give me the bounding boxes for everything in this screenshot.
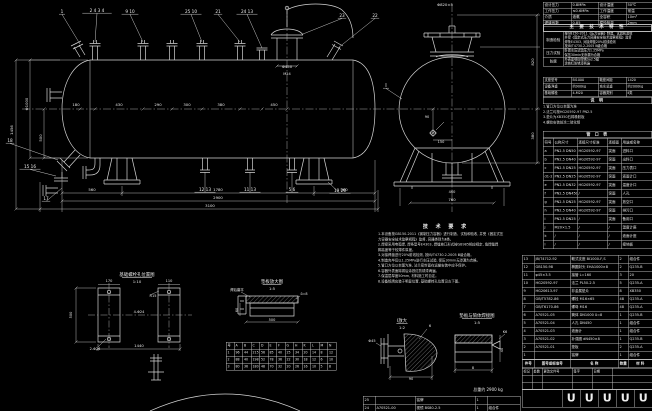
table-cell: 48 xyxy=(618,295,628,303)
dim-label: 500 xyxy=(69,312,73,319)
tech-param-table: 设计压力0.8MPa设计温度50℃工作压力≤0.6MPa工作温度常温介质液氨全容… xyxy=(543,2,652,27)
detail-anchor-bolt-layout xyxy=(75,283,193,351)
table-cell: 18 xyxy=(302,356,311,363)
table-cell: 26 xyxy=(294,363,303,370)
table-cell: 更改文件号 xyxy=(542,368,572,375)
table-cell: 48 xyxy=(260,363,269,370)
table-cell: A70521-00 xyxy=(375,404,415,411)
pad-hatch-strip xyxy=(246,296,298,303)
table-cell: 符号 xyxy=(543,138,553,147)
table-cell: A70521-01 xyxy=(534,343,570,351)
table-cell: 日期 xyxy=(592,368,612,375)
saddle-right xyxy=(296,158,332,184)
balloon-leader xyxy=(338,18,375,48)
table-cell: 36 xyxy=(277,356,286,363)
table-cell: 88 xyxy=(234,356,243,363)
bom-revision-rows: 标记处数更改文件号签字日期 xyxy=(522,368,652,390)
table-cell: HG20592-97 xyxy=(577,198,607,207)
nozzle-table: 符号公称尺寸连接尺寸标准连接面用途或名称aPN2.5 DN50HG20592-9… xyxy=(543,138,652,249)
table-cell: 名 称 xyxy=(570,360,618,368)
table-cell: 组合件 xyxy=(628,319,652,327)
table-cell: / xyxy=(577,189,607,198)
table-cell: Q235-A xyxy=(628,343,652,351)
misc-bottom-left-detail xyxy=(148,354,164,380)
end-view xyxy=(394,4,540,212)
table-cell: 44 xyxy=(243,349,252,356)
table-cell: 补强圈 dN450×8 xyxy=(570,335,618,343)
table-cell xyxy=(612,375,652,382)
table-cell: PN2.5 DN25 xyxy=(553,215,577,224)
table-cell: 25 xyxy=(285,349,294,356)
table-row: aPN2.5 DN50HG20592-97突面进料口 xyxy=(543,147,652,156)
dim-label: M24 xyxy=(283,72,291,76)
table-cell: N xyxy=(328,342,337,349)
table-cell: 公称尺寸 xyxy=(553,138,577,147)
table-cell: 34 xyxy=(294,349,303,356)
table-cell: 2 xyxy=(618,255,628,263)
table-cell: 9 xyxy=(522,287,534,295)
table-cell: 180 xyxy=(251,363,260,370)
table-cell: E xyxy=(268,342,277,349)
table-row: gPN2.5 DN25HG20592-97突面放空口 xyxy=(543,198,652,207)
table-cell: f xyxy=(543,189,553,198)
table-row: 2884019852783622301812610 xyxy=(226,356,336,363)
saddle-left xyxy=(104,158,140,184)
balloon-label: 9 10 xyxy=(125,9,135,14)
balloon-label: 18 xyxy=(7,138,13,143)
table-cell: 放空口 xyxy=(621,198,652,207)
table-cell: 备用口 xyxy=(621,215,652,224)
dim-label: 2900 xyxy=(213,195,223,200)
table-row: 24A70521-00视镜 BS80-2.51组合件 xyxy=(363,404,520,411)
table-cell: 1 xyxy=(618,319,628,327)
table-cell: 组合件 xyxy=(628,255,652,263)
dim-label: 150 xyxy=(438,140,445,144)
table-cell: 6 xyxy=(522,311,534,319)
table-cell: / xyxy=(577,223,607,232)
table-cell: U xyxy=(580,390,598,408)
table-cell: 号 xyxy=(226,342,234,349)
table-cell: F xyxy=(277,342,286,349)
table-cell: JB/T4712-92 xyxy=(534,255,570,263)
tech-spec-table: 制造检验按GB150-2011《压力容器》制造、试验和验收并受《固定式压力容器安… xyxy=(543,31,652,66)
balloon-label: 1 xyxy=(61,9,64,14)
table-row: 符号公称尺寸连接尺寸标准连接面用途或名称 xyxy=(543,138,652,147)
table-cell: 液面计 xyxy=(570,327,618,335)
nozzle-table-title: 管 口 表 xyxy=(543,131,652,138)
table-cell: 20 xyxy=(302,349,311,356)
table-cell: 20 xyxy=(285,363,294,370)
table-cell: 进料口 xyxy=(621,147,652,156)
table-cell xyxy=(592,375,612,382)
left-head-lower-elbow xyxy=(54,150,80,181)
table-cell: G xyxy=(285,342,294,349)
table-cell: / xyxy=(553,232,577,241)
table-cell: 垫板 xyxy=(570,343,618,351)
balloon-leader xyxy=(218,14,240,42)
table-cell: 件号 xyxy=(522,360,534,368)
spec-cell: 按GB150-2011《压力容器》制造、试验和验收并受《固定式压力容器安全技术监… xyxy=(563,31,652,48)
table-cell: K xyxy=(302,342,311,349)
table-cell: HG20592-97 xyxy=(577,164,607,173)
table-cell: 4-M20 xyxy=(571,90,598,97)
top-nozzle xyxy=(167,40,178,60)
balloon-leader xyxy=(10,143,58,160)
spec-cell: 外表面喷砂除锈Sa2.5级涂铁红防锈漆两遍 xyxy=(563,57,652,66)
table-row: 2A70521-01垫板2Q235-A xyxy=(522,343,652,351)
table-cell: 70 xyxy=(268,363,277,370)
table-cell: Q235-B xyxy=(628,311,652,319)
left-head-top-nozzle xyxy=(71,41,85,57)
dim-label: Φ820±5 xyxy=(437,2,453,7)
table-cell: 11 xyxy=(522,271,534,279)
table-cell: 容器类别 xyxy=(598,90,626,97)
table-row: 3A70521-02补强圈 dN450×81Q235-B xyxy=(522,335,652,343)
table-row: l///接地板 xyxy=(543,240,652,249)
table-cell: 突面 xyxy=(607,198,621,207)
top-nozzle xyxy=(138,40,149,60)
table-cell: e xyxy=(543,181,553,190)
table-cell xyxy=(522,390,562,408)
table-cell: 压力表口 xyxy=(621,164,652,173)
table-cell: HG20592-97 xyxy=(577,172,607,181)
spec-cell: 卧置水压试验压力1.25MPa保压30min无渗漏为合格 xyxy=(563,48,652,57)
table-cell: 7 xyxy=(522,303,534,311)
table-cell: 85 xyxy=(268,349,277,356)
table-cell: 数量 xyxy=(618,360,628,368)
table-cell: 12 xyxy=(522,263,534,271)
manhole-davit xyxy=(287,4,353,38)
tech-notes-lines: 1.管口方位以本图为准2.法兰均按HG20592-97 PN2.53.垫片为XB… xyxy=(543,104,652,125)
dim-label: 1:5 xyxy=(269,286,276,291)
table-cell: 2 xyxy=(226,356,234,363)
table-cell: HG20592-97 xyxy=(534,279,570,287)
dim-label: 60 xyxy=(235,308,239,312)
bom-table: 13JB/T4712-92鞍式支座 BⅠ1000-F,S2组合件12GB150-… xyxy=(522,255,652,360)
table-cell: 3 xyxy=(618,271,628,279)
table-cell: GB150-98 xyxy=(534,263,570,271)
bom2-table: 25铭牌124A70521-00视镜 BS80-2.51组合件 xyxy=(363,396,521,411)
table-cell: 6 xyxy=(319,356,328,363)
table-cell: 2 xyxy=(618,343,628,351)
table-cell: / xyxy=(577,240,607,249)
dim-label: 380 xyxy=(530,132,535,140)
dim-label: 40 xyxy=(500,348,504,352)
table-cell: 突面 xyxy=(607,181,621,190)
table-cell: M xyxy=(319,342,328,349)
table-cell: 40 xyxy=(277,349,286,356)
text-line: 涂铁红防锈漆两遍 xyxy=(565,62,652,66)
table-cell: 连接面 xyxy=(607,138,621,147)
table-row: cPN2.5 DN25HG20592-97突面压力表口 xyxy=(543,164,652,173)
table-row: 10HG20592-97法兰 PL50-2.55Q235-A xyxy=(522,279,652,287)
table-cell: 基础螺栓 xyxy=(543,90,571,97)
dim-label: 500 xyxy=(269,318,276,322)
pad-table-block: 号ABCDEFGHKLMN196442155685402534201481228… xyxy=(226,342,334,399)
table-cell: 签字 xyxy=(572,368,592,375)
table-row: 25铭牌1 xyxy=(363,396,520,404)
table-cell: 鞍式支座 BⅠ1000-F,S xyxy=(570,255,618,263)
table-row xyxy=(522,382,652,389)
spec-cell: 压力试验 xyxy=(543,48,563,57)
table-cell: GB/T5782-86 xyxy=(534,295,570,303)
balloon-leader xyxy=(303,18,342,34)
top-nozzle xyxy=(235,40,246,60)
table-cell: PN2.5 DN25 xyxy=(553,198,577,207)
table-cell: / xyxy=(607,223,621,232)
balloon-leader xyxy=(30,169,56,176)
table-cell: 8 xyxy=(618,287,628,295)
table-cell: 出料口 xyxy=(621,155,652,164)
balloon-leader xyxy=(46,188,62,201)
table-cell: L xyxy=(311,342,320,349)
dim-label: 基础螺栓孔位置图 xyxy=(119,271,155,278)
tech-grid2-table: 支座型号BⅠ1000鞍座间距1420设备净重约900kg充水总重约2000kg基… xyxy=(543,77,652,97)
table-cell: / xyxy=(607,240,621,249)
main-view xyxy=(15,4,541,212)
table-row: ePN2.5 DN32HG20592-97突面温度计口 xyxy=(543,181,652,190)
table-cell: 突面 xyxy=(607,206,621,215)
table-cell: U xyxy=(598,390,616,408)
table-cell: 40 xyxy=(243,356,252,363)
table-cell: 3 xyxy=(226,363,234,370)
top-nozzle xyxy=(197,40,208,60)
table-row: 13JB/T4712-92鞍式支座 BⅠ1000-F,S2组合件 xyxy=(522,255,652,263)
spec-row: 防腐外表面喷砂除锈Sa2.5级涂铁红防锈漆两遍 xyxy=(543,57,652,66)
dim-label: 90 xyxy=(425,115,429,119)
text-line: 4.螺纹安装前涂二硫化钼 xyxy=(543,120,652,125)
bom2-block: 25铭牌124A70521-00视镜 BS80-2.51组合件 xyxy=(363,396,520,411)
table-cell xyxy=(532,382,542,389)
right-head-nozzle xyxy=(327,41,343,60)
dim-label: 820 xyxy=(530,58,535,66)
table-cell: 3 xyxy=(522,335,534,343)
balloon-leader xyxy=(247,14,262,48)
dim-label: 760 xyxy=(448,197,456,202)
table-cell: 48 xyxy=(618,303,628,311)
table-cell: 突面 xyxy=(607,164,621,173)
table-row: 11φ45×3.5接管 L=160320 xyxy=(522,271,652,279)
dim-label: 4-Φ24 xyxy=(134,310,145,314)
table-cell xyxy=(522,375,532,382)
technical-requirements-lines: 1.本设备按GB150-2011《钢制压力容器》进行制造、试验和验收, 并受《固… xyxy=(378,232,514,285)
dim-label: 290 xyxy=(154,102,162,107)
table-cell: U xyxy=(616,390,634,408)
table-cell: Q235-A xyxy=(628,303,652,311)
table-row: iPN2.5 DN25/突面备用口 xyxy=(543,215,652,224)
table-cell: / xyxy=(577,232,607,241)
table-row: bPN2.5 DN40HG20592-97突面出料口 xyxy=(543,155,652,164)
table-cell: 接管 L=160 xyxy=(570,271,618,279)
table-cell: 4 xyxy=(522,327,534,335)
table-cell: 人孔 DN450 xyxy=(570,319,618,327)
table-row: 基础螺栓4-M20容器类别Ⅱ类 xyxy=(543,90,652,97)
table-cell: HG20592-97 xyxy=(577,206,607,215)
table-cell: 连接尺寸标准 xyxy=(577,138,607,147)
dim-label: 430 xyxy=(115,102,123,107)
table-cell: 56 xyxy=(260,349,269,356)
table-cell: 10 xyxy=(311,363,320,370)
table-cell: a xyxy=(543,147,553,156)
table-cell: 10 xyxy=(328,356,337,363)
table-cell: 1 xyxy=(475,396,487,404)
dim-label: 2-Φ24 xyxy=(90,347,101,351)
table-cell: PN2.5 DN25 xyxy=(553,172,577,181)
table-row: UUUUU xyxy=(522,390,652,408)
table-cell xyxy=(522,382,532,389)
table-cell: HG20592-97 xyxy=(577,181,607,190)
table-cell: 198 xyxy=(251,356,260,363)
table-cell: 接地板 xyxy=(621,240,652,249)
table-cell: 1 xyxy=(618,311,628,319)
table-cell: 人孔 xyxy=(621,189,652,198)
table-row: 8GB/T5782-86螺栓 M16×6548Q235-A xyxy=(522,295,652,303)
table-row: jM20×1.5//温度计座 xyxy=(543,223,652,232)
table-cell xyxy=(532,375,542,382)
dim-label: Φ450 xyxy=(282,64,293,69)
dim-label: 380 xyxy=(217,102,225,107)
dim-label: 1780 xyxy=(213,187,223,192)
table-cell: PN2.5 DN40 xyxy=(553,155,577,164)
table-row: 号ABCDEFGHKLMN xyxy=(226,342,336,349)
balloon-label: 17 xyxy=(43,196,49,201)
table-cell: h xyxy=(543,206,553,215)
table-row: 380361804870322026161058 xyxy=(226,363,336,370)
interior-nozzle-cross xyxy=(429,122,452,140)
dim-label: 90 xyxy=(409,377,413,381)
table-row: fPN2.5 DN450/突面人孔 xyxy=(543,189,652,198)
table-cell: 组合件 xyxy=(628,351,652,359)
table-cell: A70521-02 xyxy=(534,335,570,343)
bom-block: 13JB/T4712-92鞍式支座 BⅠ1000-F,S2组合件12GB150-… xyxy=(522,255,652,411)
text-line: 8.设备铭牌应装于明显位置, 基础螺栓孔位置见左下图。 xyxy=(378,279,514,284)
table-cell: 液面计口 xyxy=(621,172,652,181)
table-cell: 8 xyxy=(319,349,328,356)
layout-dims xyxy=(75,285,182,352)
dim-label: 180 xyxy=(72,102,80,107)
table-cell: 组合件 xyxy=(487,404,520,411)
dim-label: 110 xyxy=(166,279,173,283)
table-cell: 96 xyxy=(234,349,243,356)
dim-label: 460 xyxy=(449,190,456,194)
balloon-label: 25 10 xyxy=(185,9,197,14)
table-cell: g xyxy=(543,198,553,207)
table-cell xyxy=(592,382,612,389)
dim-label: 450 xyxy=(270,102,278,107)
bottom-nozzle xyxy=(287,158,297,173)
spec-cell: 制造检验 xyxy=(543,31,563,48)
table-cell: 排污口 xyxy=(621,206,652,215)
table-cell: 突面 xyxy=(607,172,621,181)
dim-label: 8 xyxy=(472,366,474,370)
balloon-leader xyxy=(191,14,202,42)
main-dimensions xyxy=(15,59,380,213)
table-cell: PN2.5 DN450 xyxy=(553,189,577,198)
table-cell: 突面 xyxy=(607,215,621,224)
table-cell: φ45×3.5 xyxy=(534,271,570,279)
table-cell: / xyxy=(607,232,621,241)
table-cell: 8 xyxy=(522,295,534,303)
spec-row: 压力试验卧置水压试验压力1.25MPa保压30min无渗漏为合格 xyxy=(543,48,652,57)
dim-label: R15 xyxy=(150,294,157,298)
dim-label: 560 xyxy=(88,187,96,192)
table-cell: M20×1.5 xyxy=(553,223,577,232)
table-cell: 24 xyxy=(363,404,375,411)
pad-flange xyxy=(238,296,246,314)
table-cell: l xyxy=(543,240,553,249)
table-cell: 30 xyxy=(294,356,303,363)
balloon-leader xyxy=(386,88,402,99)
table-cell: 温度计口 xyxy=(621,181,652,190)
table-cell: Ⅱ类 xyxy=(626,90,652,97)
balloon-label: 23 xyxy=(339,13,345,18)
left-head-side-nozzle xyxy=(47,88,62,102)
table-row: 1铭牌1组合件 xyxy=(522,351,652,359)
dim-label: 1440 xyxy=(134,343,144,348)
table-cell: 1 xyxy=(618,335,628,343)
dim-label: 1:10 xyxy=(133,279,142,284)
table-cell: 突面 xyxy=(607,189,621,198)
balloon-label: 24 13 xyxy=(241,9,253,14)
table-cell: 1 xyxy=(618,327,628,335)
title-block-logo-strip: UUUUU xyxy=(522,390,652,408)
table-cell: HG20592-97 xyxy=(577,155,607,164)
bottom-left-elbow xyxy=(83,158,100,179)
dim-label: 500 xyxy=(38,134,43,142)
table-row: k///液面计座 xyxy=(543,232,652,241)
table-cell: 5 xyxy=(618,279,628,287)
table-cell: 8 xyxy=(328,363,337,370)
dim-label: 焊后磨平 xyxy=(230,287,244,292)
table-cell: 2 xyxy=(618,263,628,271)
table-cell: GB/T6170-86 xyxy=(534,303,570,311)
table-cell: H xyxy=(294,342,303,349)
table-cell: Q235-B xyxy=(628,263,652,271)
table-cell: c xyxy=(543,164,553,173)
dim-label: 170 xyxy=(106,279,113,283)
table-cell: 视镜 BS80-2.5 xyxy=(415,404,475,411)
balloon-label: 2 4 3 4 xyxy=(90,8,105,13)
table-row: 1964421556854025342014812 xyxy=(226,349,336,356)
top-nozzle xyxy=(90,40,101,60)
table-row: 7GB/T6170-86螺母 M1648Q235-A xyxy=(522,303,652,311)
table-cell: 螺栓 M16×65 xyxy=(570,295,618,303)
table-cell: d1-2 xyxy=(543,172,553,181)
table-row: 9HG20613-97非金属垫片8XB350 xyxy=(522,287,652,295)
table-cell: A70521-05 xyxy=(534,311,570,319)
table-cell: / xyxy=(553,240,577,249)
table-cell: 椭圆封头 EHA1000×8 xyxy=(570,263,618,271)
table-cell: D xyxy=(260,342,269,349)
table-cell: 1 xyxy=(522,351,534,359)
table-cell: C xyxy=(251,342,260,349)
table-cell: 25 xyxy=(363,396,375,404)
left-head-small-stub xyxy=(43,185,58,196)
table-cell: 5 xyxy=(522,319,534,327)
table-cell: 液面计座 xyxy=(621,232,652,241)
table-cell xyxy=(375,396,415,404)
table-cell: 2 xyxy=(522,343,534,351)
small-flange xyxy=(148,354,164,380)
table-cell: 20 xyxy=(628,271,652,279)
table-cell xyxy=(572,375,592,382)
table-cell: k xyxy=(543,232,553,241)
table-cell: 12 xyxy=(328,349,337,356)
dim-label: δ=8 xyxy=(300,292,307,296)
technical-requirements: 技 术 要 求 1.本设备按GB150-2011《钢制压力容器》进行制造、试验和… xyxy=(378,222,514,346)
top-nozzle xyxy=(257,48,268,60)
table-cell: 温度计座 xyxy=(621,223,652,232)
